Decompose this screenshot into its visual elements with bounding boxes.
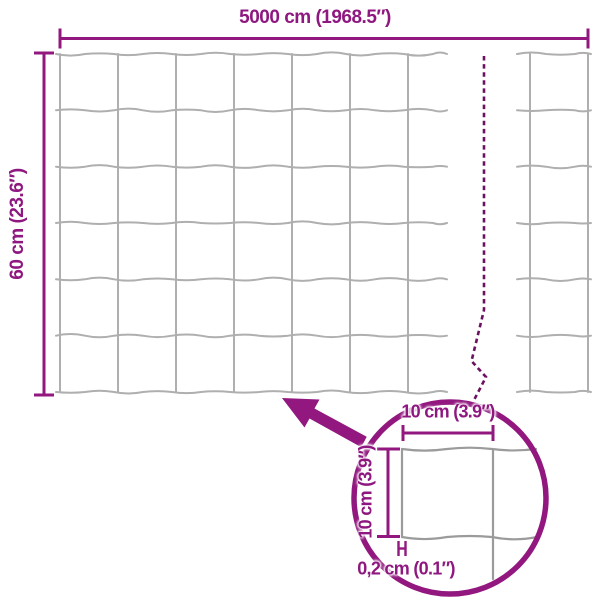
zoom-arrow-icon (282, 398, 367, 447)
mesh-wire-horizontal (56, 165, 447, 168)
mesh-width-label: 10 cm (3.9″) (401, 402, 494, 423)
detail-wire-horizontal (402, 536, 537, 539)
mesh-wire-horizontal (517, 278, 591, 281)
mesh-wire-horizontal (56, 278, 447, 281)
top-dimension (60, 29, 588, 49)
mesh-wire-horizontal (517, 335, 591, 337)
mesh-wire-horizontal (56, 391, 447, 394)
detail-wire-horizontal (402, 448, 536, 451)
left-dimension (34, 53, 54, 395)
mesh-wire-horizontal (56, 52, 447, 55)
mesh-wire-horizontal (56, 109, 447, 112)
wire-thickness-marker (399, 541, 406, 556)
detail-dimensions (377, 425, 493, 537)
fence-dimension-diagram: 5000 cm (1968.5″) 60 cm (23.6″) 10 cm (3… (0, 0, 600, 600)
total-height-label: 60 cm (23.6″) (7, 168, 29, 279)
mesh-wire-horizontal (517, 391, 591, 393)
mesh-wire-horizontal (517, 110, 591, 112)
mesh-wire-horizontal (56, 334, 447, 337)
total-width-label: 5000 cm (1968.5″) (239, 7, 391, 29)
diagram-artwork (0, 0, 600, 600)
mesh-wire-horizontal (517, 166, 591, 169)
wire-thickness-label: 0,2 cm (0.1″) (357, 559, 455, 580)
mesh-wire-horizontal (56, 221, 447, 224)
mesh-height-label: 10 cm (3.9″) (356, 445, 377, 538)
mesh-wire-horizontal (517, 53, 591, 55)
mesh-grid (56, 52, 591, 393)
length-break-line (472, 56, 487, 402)
mesh-wire-horizontal (517, 222, 591, 224)
